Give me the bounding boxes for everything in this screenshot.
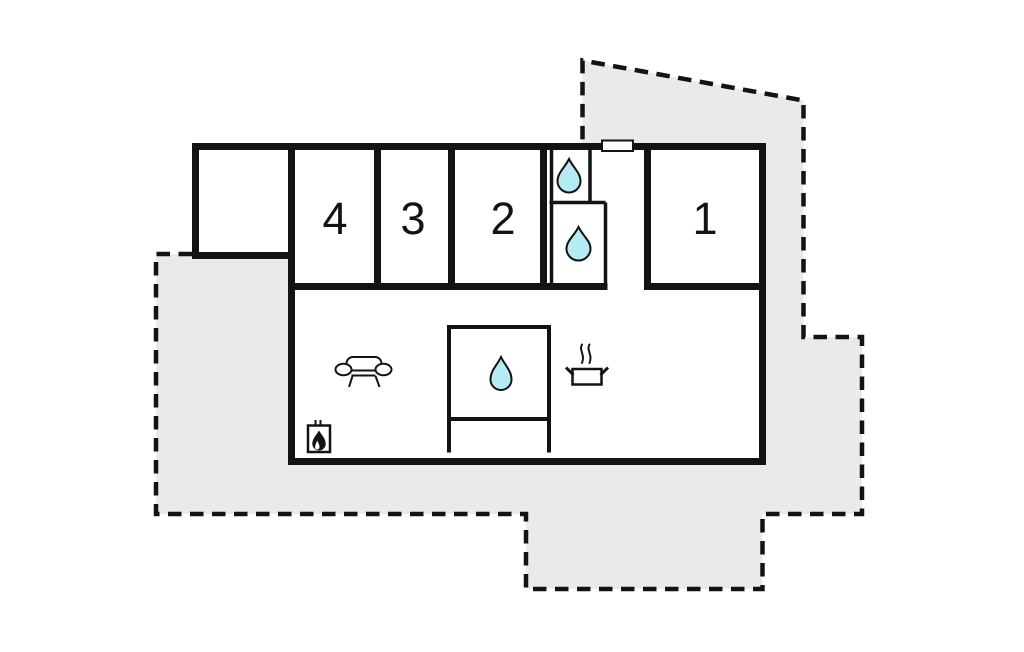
sofa-arm-right bbox=[376, 364, 392, 376]
fireplace-icon bbox=[308, 420, 330, 452]
pot-body bbox=[573, 369, 602, 385]
entrance-door bbox=[602, 141, 633, 152]
floor-plan-drawing: 1 2 3 4 bbox=[0, 0, 1024, 652]
sofa-arm-left bbox=[336, 364, 352, 376]
room-4-number: 4 bbox=[322, 193, 347, 244]
room-1-number: 1 bbox=[692, 193, 717, 244]
room-3-number: 3 bbox=[400, 193, 425, 244]
room-2-number: 2 bbox=[490, 193, 515, 244]
floor-plan-canvas: 1 2 3 4 bbox=[0, 0, 1024, 652]
